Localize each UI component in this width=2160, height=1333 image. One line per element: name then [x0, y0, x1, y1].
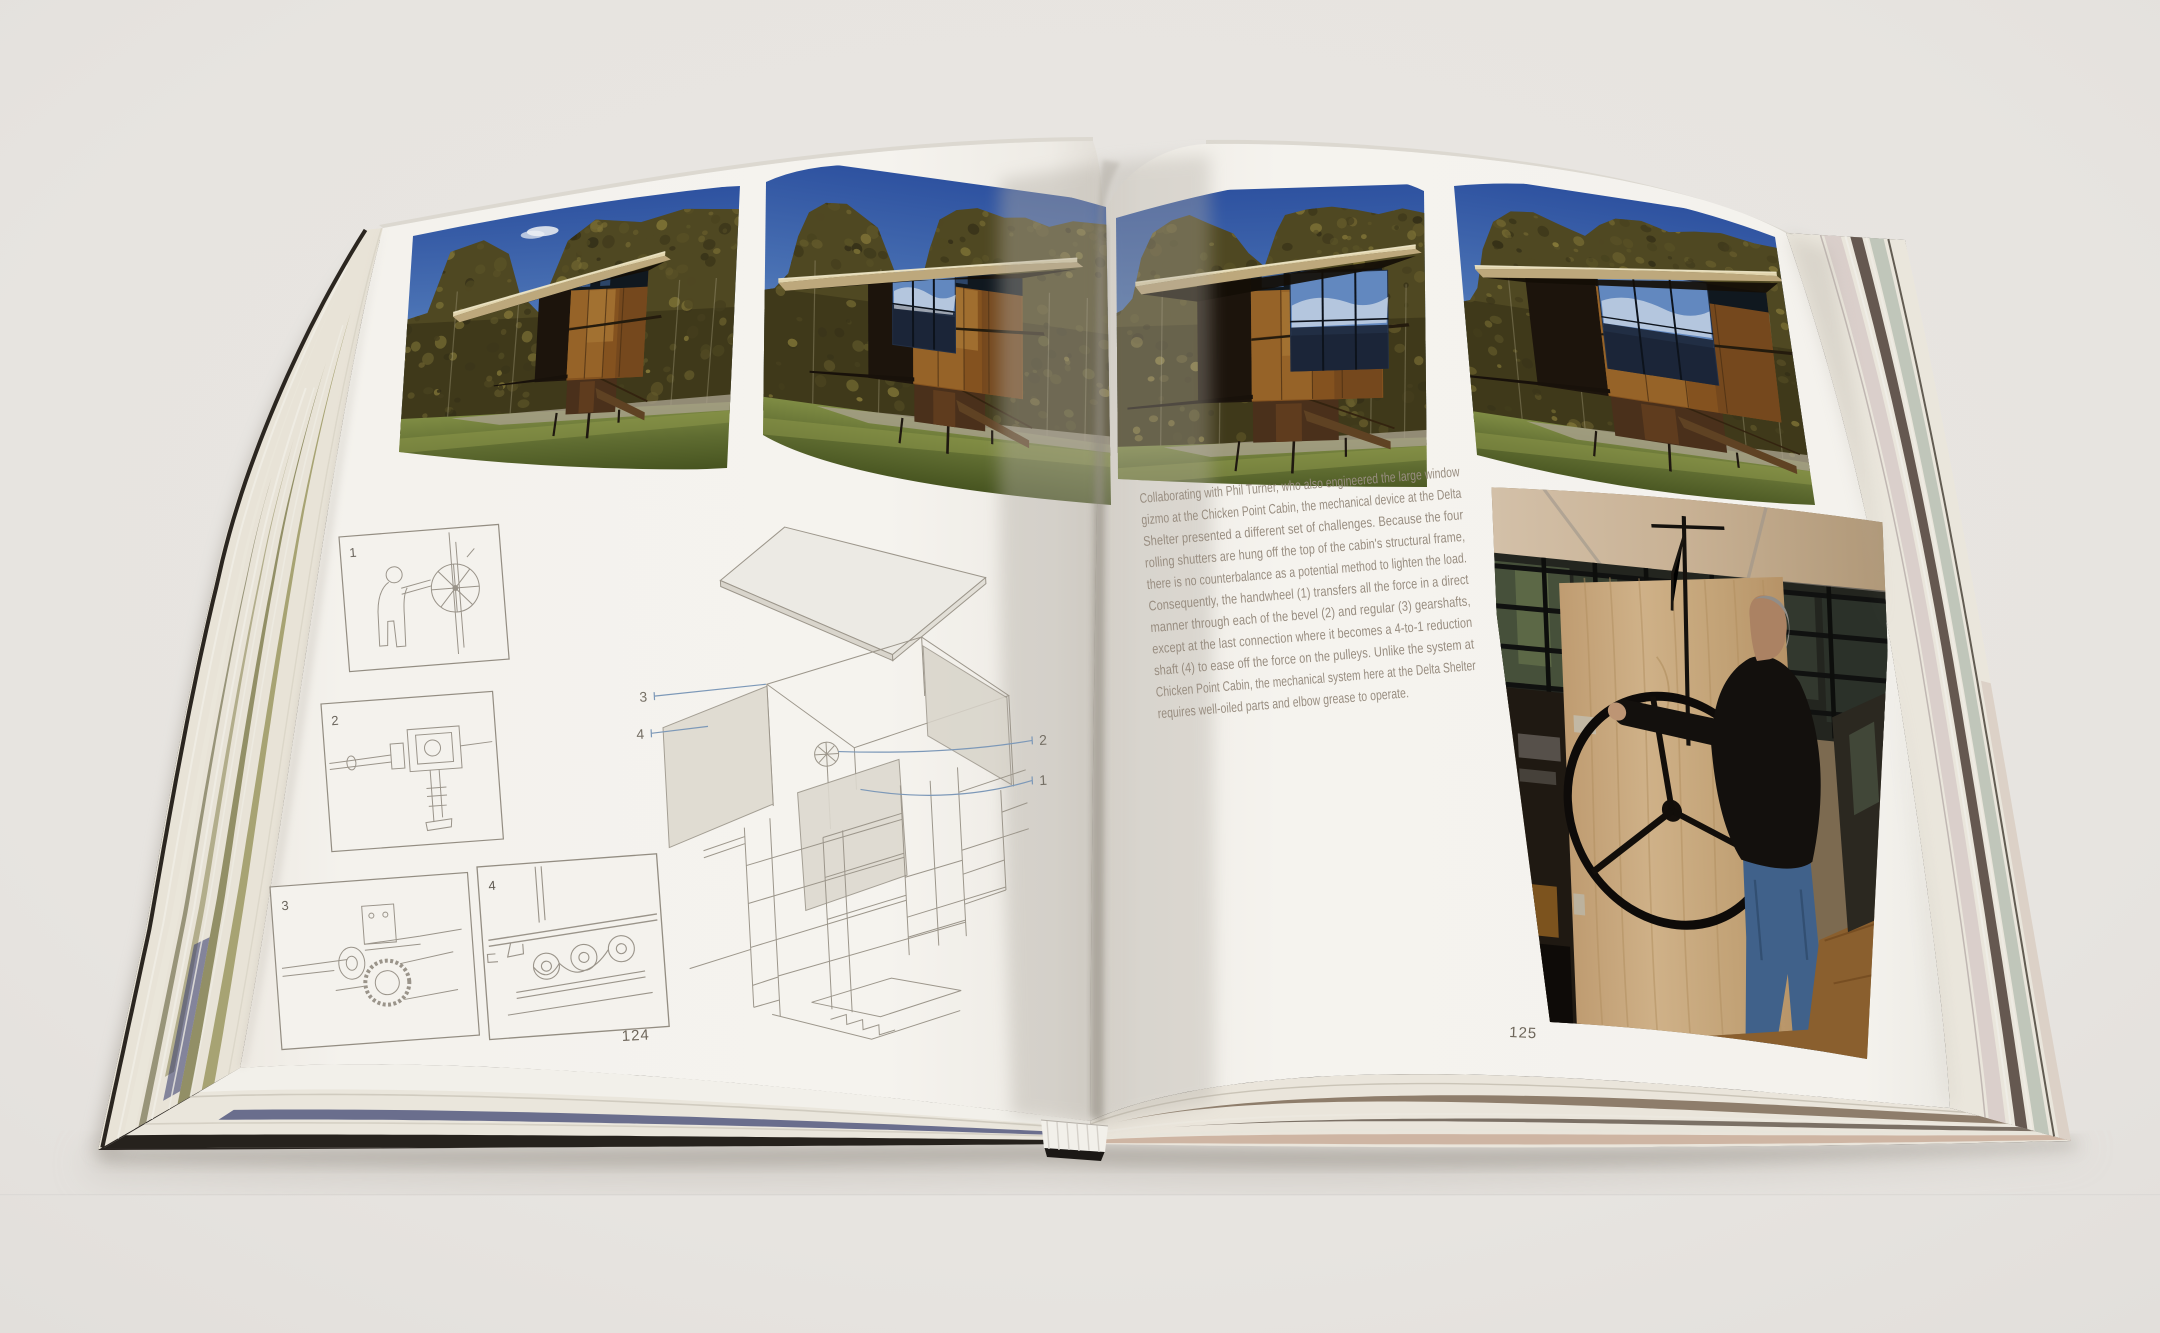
- svg-text:1: 1: [349, 545, 357, 561]
- svg-text:1: 1: [1039, 772, 1048, 788]
- svg-text:125: 125: [1509, 1024, 1538, 1042]
- svg-text:4: 4: [488, 878, 496, 893]
- svg-text:124: 124: [621, 1027, 650, 1045]
- svg-text:2: 2: [1039, 732, 1048, 748]
- svg-text:2: 2: [331, 713, 339, 728]
- svg-text:3: 3: [639, 689, 648, 705]
- svg-text:4: 4: [636, 726, 645, 742]
- svg-text:3: 3: [281, 898, 289, 913]
